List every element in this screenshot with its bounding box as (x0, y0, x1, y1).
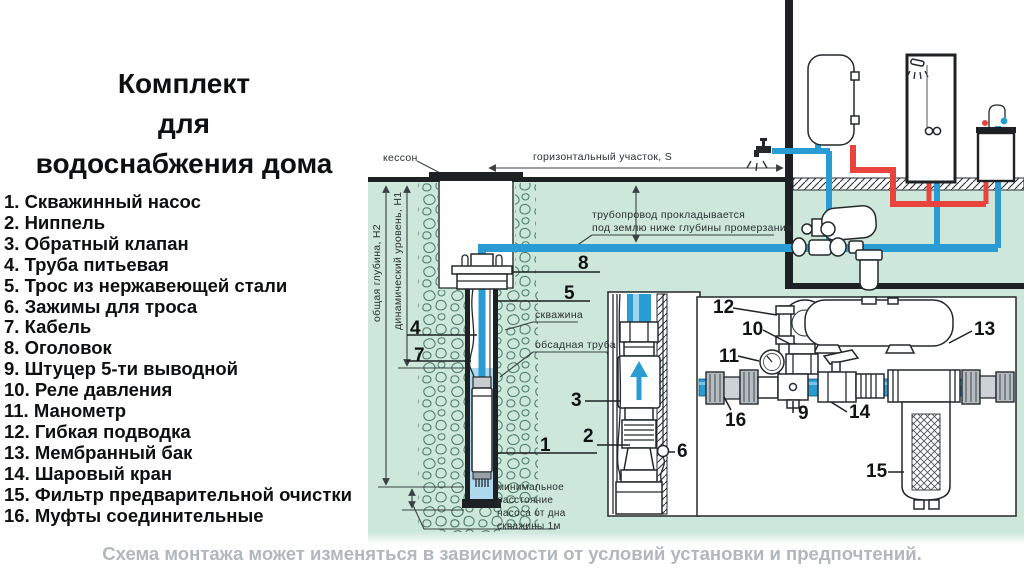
callout-3: 3 (571, 391, 582, 410)
filter-head (888, 370, 960, 402)
legend-item: 12. Гибкая подводка (4, 422, 370, 443)
legend-item: 10. Реле давления (4, 380, 370, 401)
shower-cabin (907, 55, 955, 182)
page-title: Комплект для водоснабжения дома (8, 64, 360, 184)
legend-item: 3. Обратный клапан (4, 234, 370, 255)
legend-item: 16. Муфты соединительные (4, 506, 370, 527)
callout-8: 8 (578, 254, 589, 273)
callout-16: 16 (725, 411, 746, 430)
legend-item: 14. Шаровый кран (4, 464, 370, 485)
label-caisson: кессон (383, 152, 418, 165)
label-total-depth: общая глубина, Н2 (371, 224, 384, 322)
label-well: скважина (535, 309, 583, 322)
legend-item: 8. Оголовок (4, 338, 370, 359)
callout-12: 12 (713, 298, 734, 317)
label-horizontal-section: горизонтальный участок, S (533, 151, 672, 164)
outdoor-tap (747, 138, 771, 171)
footer-note: Схема монтажа может изменяться в зависим… (0, 543, 1024, 565)
callout-5: 5 (564, 284, 575, 303)
callout-10: 10 (742, 320, 763, 339)
callout-11: 11 (719, 347, 739, 366)
callout-2: 2 (583, 427, 594, 446)
callout-1: 1 (540, 436, 551, 455)
boiler (808, 55, 859, 145)
label-pipeline-note: трубопровод прокладывается под землю ниж… (592, 209, 792, 234)
label-dynamic-level: динамический уровень, Н1 (392, 192, 405, 330)
legend-item: 9. Штуцер 5-ти выводной (4, 359, 370, 380)
detail-panel-pump-string (608, 292, 700, 516)
callout-13: 13 (974, 320, 995, 339)
legend-item: 1. Скважинный насос (4, 192, 370, 213)
legend-item: 6. Зажимы для троса (4, 297, 370, 318)
schematic-page: Комплект для водоснабжения дома 1. Скваж… (0, 0, 1024, 576)
submersible-pump (472, 377, 492, 487)
callout-15: 15 (866, 462, 887, 481)
legend-item: 4. Труба питьевая (4, 255, 370, 276)
cable-clamp (658, 446, 669, 457)
legend: 1. Скважинный насос 2. Ниппель 3. Обратн… (4, 192, 370, 527)
callout-14: 14 (849, 403, 870, 422)
legend-item: 2. Ниппель (4, 213, 370, 234)
callout-7: 7 (414, 346, 425, 365)
label-casing-pipe: обсадная труба (535, 339, 616, 352)
legend-item: 11. Манометр (4, 401, 370, 422)
ball-valve (818, 372, 856, 402)
nipple (622, 420, 656, 448)
callout-6: 6 (677, 442, 688, 461)
callout-4: 4 (410, 319, 421, 338)
callout-9: 9 (798, 404, 809, 423)
legend-item: 5. Трос из нержавеющей стали (4, 276, 370, 297)
legend-item: 13. Мембранный бак (4, 443, 370, 464)
legend-item: 7. Кабель (4, 317, 370, 338)
sink (976, 105, 1016, 181)
label-min-distance: минимальное расстояние насоса от дна скв… (497, 481, 566, 533)
pressure-relay (789, 344, 815, 354)
legend-item: 15. Фильтр предварительной очистки (4, 485, 370, 506)
